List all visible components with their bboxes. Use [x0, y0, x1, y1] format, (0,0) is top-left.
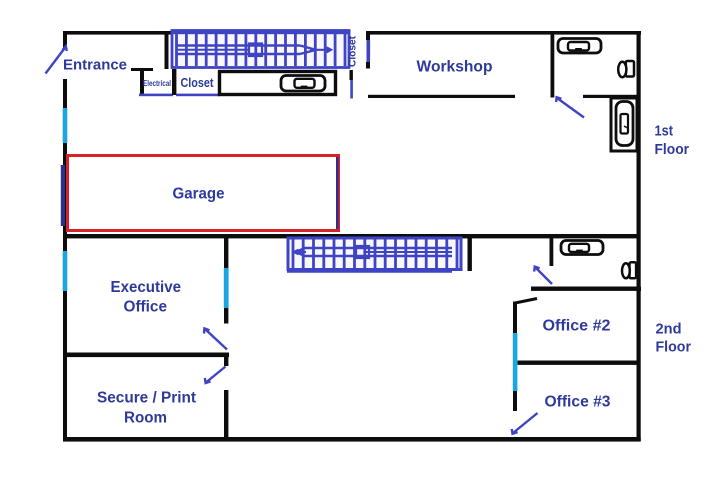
svg-text:Office #2: Office #2	[543, 318, 611, 335]
svg-text:Office #3: Office #3	[545, 394, 611, 411]
svg-text:2nd: 2nd	[656, 322, 682, 338]
svg-text:Executive: Executive	[111, 279, 182, 296]
svg-text:Closet: Closet	[181, 76, 215, 90]
svg-text:Workshop: Workshop	[417, 59, 493, 76]
svg-text:Office: Office	[124, 299, 168, 316]
svg-text:Secure / Print: Secure / Print	[97, 390, 197, 407]
svg-text:Floor: Floor	[655, 142, 690, 158]
svg-text:Closet: Closet	[347, 36, 359, 67]
svg-text:1st: 1st	[655, 124, 674, 140]
svg-text:Floor: Floor	[656, 340, 692, 356]
svg-text:Room: Room	[124, 410, 167, 427]
svg-text:Garage: Garage	[173, 186, 225, 203]
svg-text:Entrance: Entrance	[63, 58, 127, 74]
svg-text:Electrical: Electrical	[143, 78, 171, 88]
